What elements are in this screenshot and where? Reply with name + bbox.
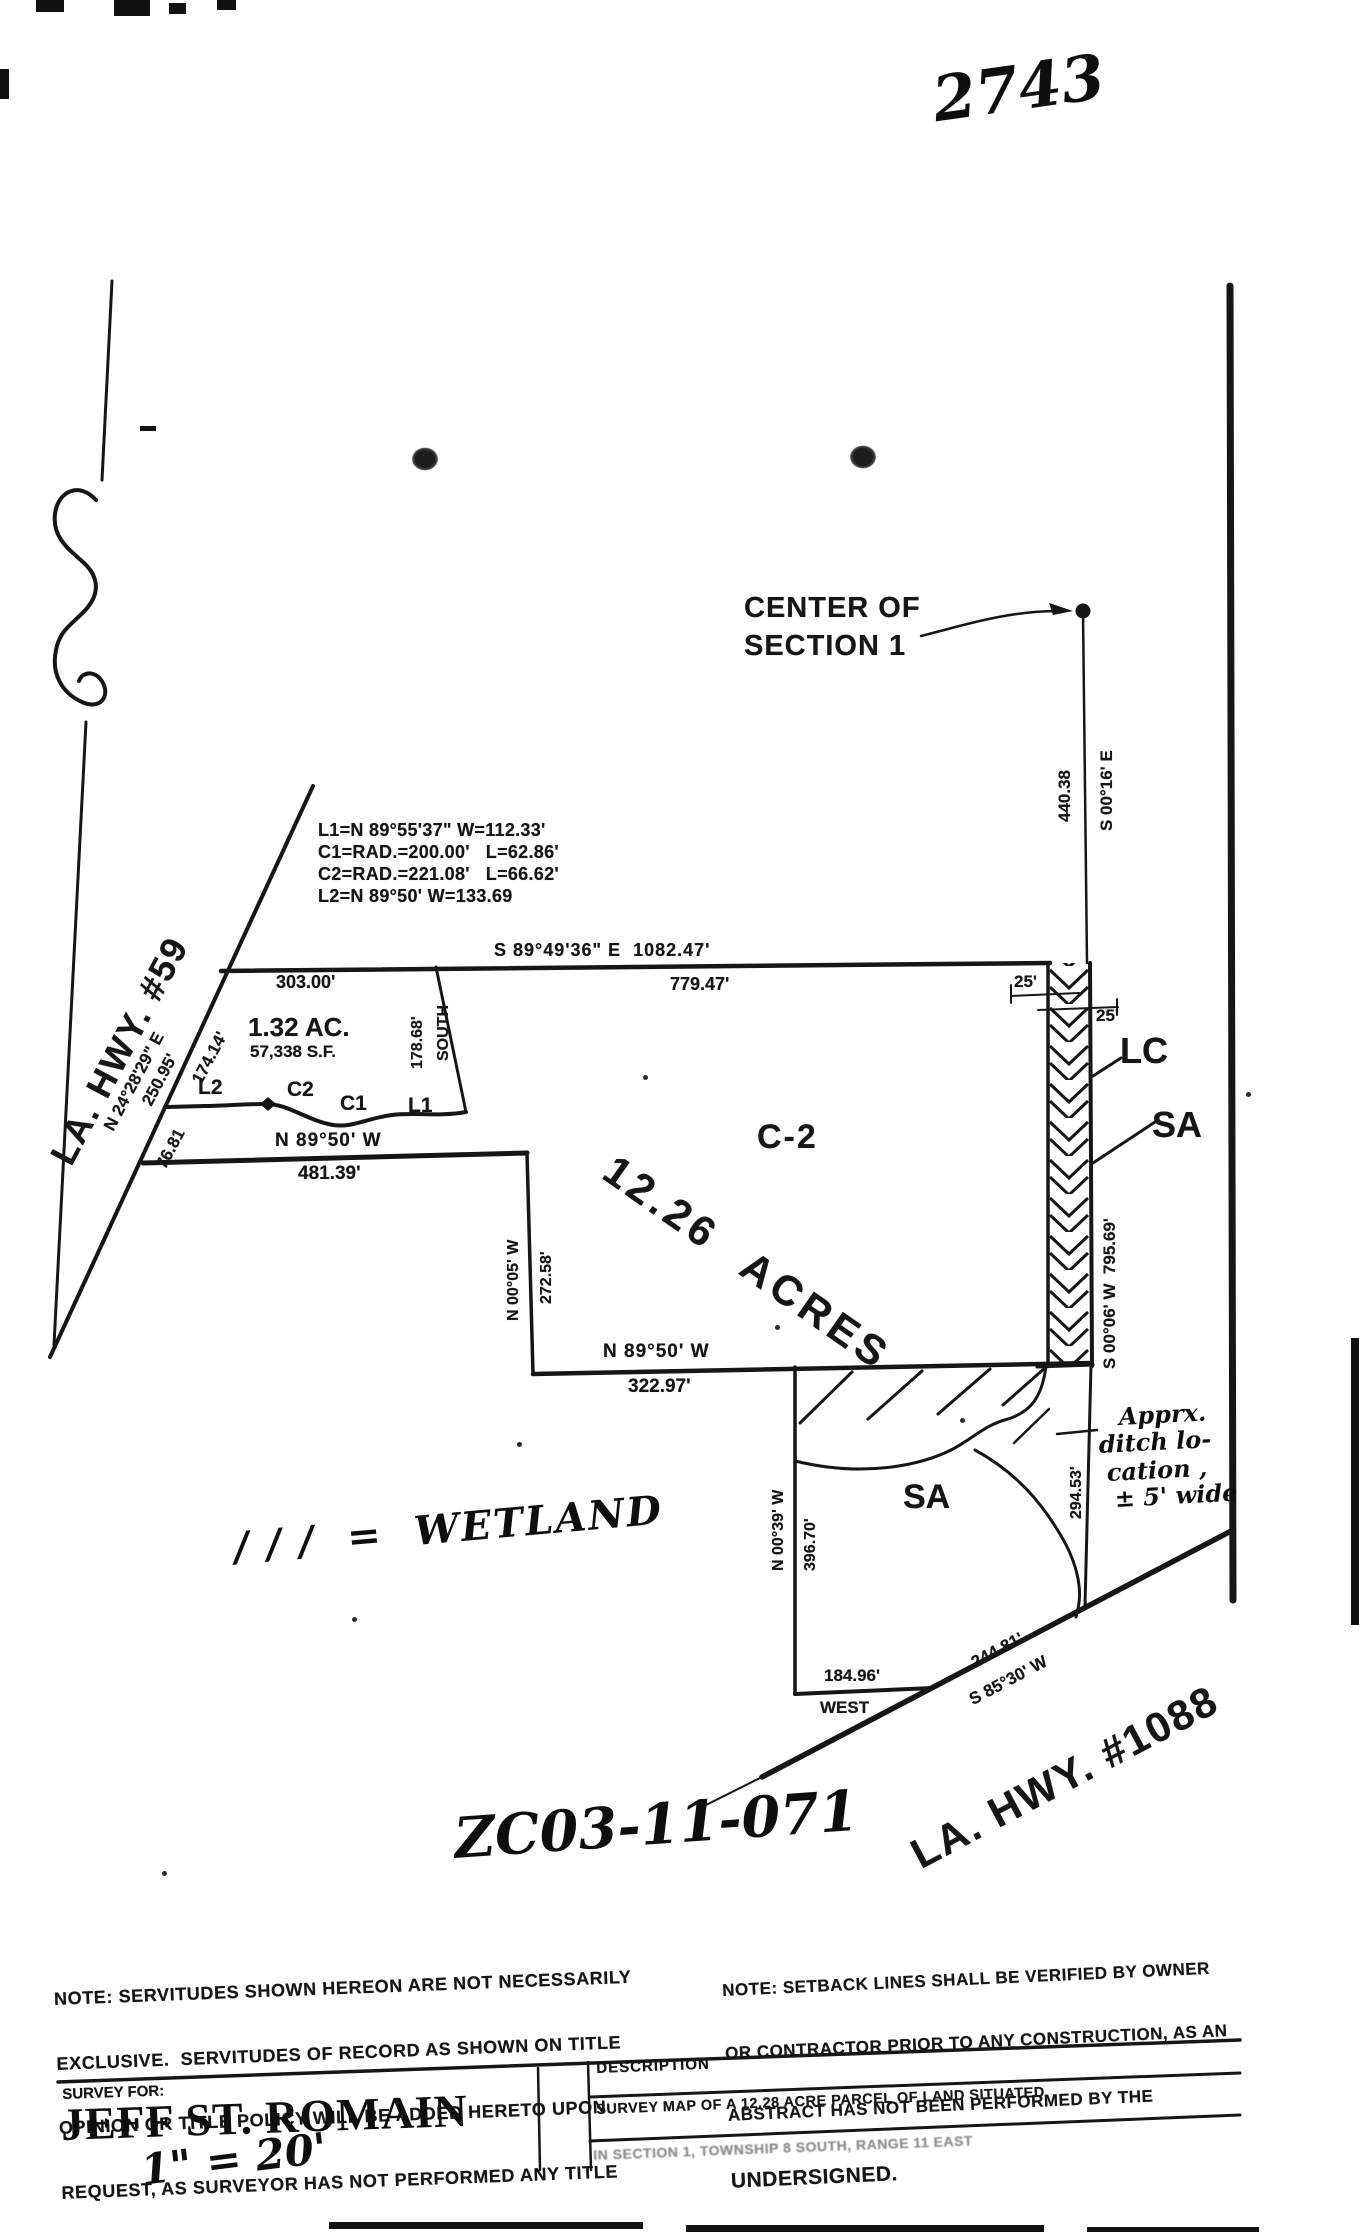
ink-stain bbox=[408, 444, 442, 474]
page-edge-mark bbox=[169, 3, 186, 14]
road-flourish-symbol bbox=[55, 490, 106, 704]
label-sa-strip: SA bbox=[1152, 1104, 1202, 1146]
section-line-bearing: S 00°16' E bbox=[1097, 750, 1117, 831]
curve-table-row: L2=N 89°50' W=133.69 bbox=[318, 886, 513, 907]
survey-document-page: 2743 / / / = WETLAND ZC03-11-071 1" = 20… bbox=[0, 0, 1359, 2232]
west-line-272-bearing: N 00°05' W bbox=[505, 1240, 523, 1321]
south-line-322-bearing: N 89°50' W bbox=[603, 1341, 710, 1363]
south-boundary-west-line bbox=[795, 1688, 933, 1694]
section-road-line bbox=[102, 281, 112, 480]
sheet-border-line bbox=[1230, 286, 1233, 1600]
parcel-132-area-ac: 1.32 AC. bbox=[248, 1012, 350, 1043]
label-l1: L1 bbox=[408, 1094, 433, 1118]
curve-table-row: L1=N 89°55'37" W=112.33' bbox=[318, 820, 546, 841]
line-178-bearing: SOUTH bbox=[435, 1005, 453, 1061]
west-line-272-distance: 272.58' bbox=[538, 1251, 556, 1304]
note-line: EXCLUSIVE. SERVITUDES OF RECORD AS SHOWN… bbox=[56, 2030, 634, 2075]
north-boundary-bearing: S 89°49'36" E 1082.47' bbox=[494, 940, 710, 961]
strip-bearing: S 00°06' W 795.69' bbox=[1100, 1218, 1120, 1369]
note-line: SEARCH OR ABSTRACT. bbox=[64, 2224, 642, 2232]
south-line-481 bbox=[143, 1153, 527, 1163]
south-boundary-distance: 184.96' bbox=[824, 1666, 880, 1686]
curve-table-row: C2=RAD.=221.08' L=66.62' bbox=[318, 864, 559, 885]
note-line: NOTE: SETBACK LINES SHALL BE VERIFIED BY… bbox=[722, 1957, 1225, 2002]
label-sa-area: SA bbox=[903, 1478, 950, 1517]
west-line-272 bbox=[527, 1153, 533, 1374]
page-edge-mark bbox=[114, 0, 150, 16]
scan-speck bbox=[643, 1075, 648, 1080]
page-edge-mark bbox=[1351, 1338, 1359, 1625]
page-edge-mark bbox=[217, 0, 236, 10]
leader-arrowhead bbox=[1049, 603, 1073, 615]
west-line-396-distance: 396.70' bbox=[802, 1518, 820, 1571]
center-of-section-label-line2: SECTION 1 bbox=[744, 630, 906, 663]
curve-point-marker bbox=[260, 1097, 276, 1111]
section-line bbox=[1083, 612, 1087, 963]
scan-speck bbox=[352, 1617, 357, 1622]
tick-mark bbox=[140, 426, 156, 431]
dim-779: 779.47' bbox=[670, 974, 729, 995]
scan-speck bbox=[162, 1871, 167, 1876]
south-line-322 bbox=[533, 1363, 1092, 1374]
lc-leader bbox=[1093, 1058, 1121, 1076]
note-setback: NOTE: SETBACK LINES SHALL BE VERIFIED BY… bbox=[720, 1917, 1236, 2232]
label-c2: C2 bbox=[287, 1078, 314, 1102]
scan-speck bbox=[960, 1418, 965, 1423]
scan-speck bbox=[517, 1442, 522, 1447]
label-c1: C1 bbox=[340, 1092, 367, 1116]
sa-leader bbox=[1093, 1122, 1155, 1163]
strip-dim-25-left: 25' bbox=[1014, 972, 1037, 992]
center-of-section-label-line1: CENTER OF bbox=[744, 592, 921, 625]
line-178-distance: 178.68' bbox=[409, 1016, 427, 1069]
note-line: OR CONTRACTOR PRIOR TO ANY CONSTRUCTION,… bbox=[725, 2020, 1228, 2065]
east-line-294-distance: 294.53' bbox=[1068, 1466, 1086, 1519]
page-edge-mark bbox=[36, 0, 64, 12]
west-line-396-bearing: N 00°39' W bbox=[770, 1490, 788, 1571]
south-line-481-bearing: N 89°50' W bbox=[275, 1130, 382, 1152]
section-corner-dot bbox=[1076, 604, 1091, 619]
note-servitudes: NOTE: SERVITUDES SHOWN HEREON ARE NOT NE… bbox=[52, 1924, 643, 2232]
north-boundary-line bbox=[221, 963, 1050, 971]
note-line: NOTE: SERVITUDES SHOWN HEREON ARE NOT NE… bbox=[54, 1966, 632, 2011]
south-line-322-distance: 322.97' bbox=[628, 1376, 691, 1398]
scan-speck bbox=[1246, 1092, 1251, 1097]
label-lc: LC bbox=[1120, 1030, 1168, 1072]
note-line: REQUEST, AS SURVEYOR HAS NOT PERFORMED A… bbox=[61, 2159, 639, 2204]
section-line-distance: 440.38 bbox=[1055, 770, 1075, 822]
south-line-481-distance: 481.39' bbox=[298, 1163, 361, 1185]
center-of-section-leader bbox=[921, 611, 1062, 636]
strip-dim-25-right: 25' bbox=[1096, 1006, 1119, 1026]
page-edge-mark bbox=[0, 69, 9, 99]
ditch-note-leader bbox=[1057, 1430, 1097, 1434]
page-edge-mark bbox=[1087, 2227, 1259, 2232]
parcel-132-area-sf: 57,338 S.F. bbox=[250, 1042, 336, 1062]
south-boundary-bearing: WEST bbox=[820, 1698, 869, 1718]
zoning-label: C-2 bbox=[757, 1118, 818, 1157]
dim-303: 303.00' bbox=[276, 972, 335, 993]
wetland-hatch bbox=[800, 1367, 1049, 1443]
section-road-line-lower bbox=[54, 722, 86, 1345]
ditch-upper-edge bbox=[795, 1366, 1046, 1469]
ink-stain bbox=[846, 442, 880, 472]
scan-speck bbox=[775, 1325, 780, 1330]
ditch-lower-edge bbox=[975, 1450, 1080, 1617]
servitude-strip-hatch bbox=[1048, 963, 1091, 1366]
curve-table-row: C1=RAD.=200.00' L=62.86' bbox=[318, 842, 559, 863]
